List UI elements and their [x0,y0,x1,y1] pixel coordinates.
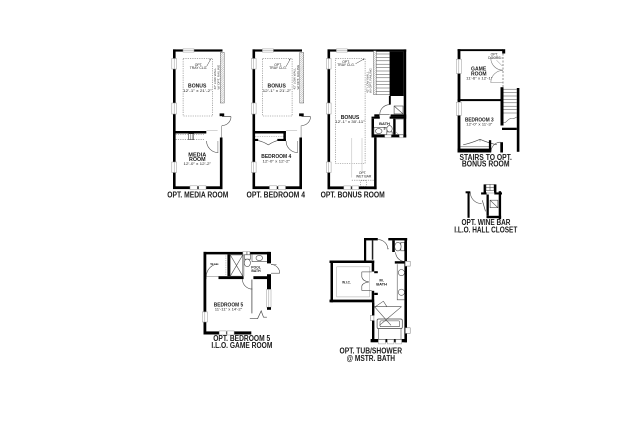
svg-text:12'-0" x 11'-3": 12'-0" x 11'-3" [466,122,493,127]
svg-text:12'-1" x 30'-11": 12'-1" x 30'-11" [335,119,365,124]
svg-text:12'-1" x 21'-2": 12'-1" x 21'-2" [263,88,292,93]
svg-text:OPT. MEDIA ROOM: OPT. MEDIA ROOM [167,190,228,199]
svg-text:W/ OPT. RAILING: W/ OPT. RAILING [296,64,300,89]
svg-text:W/ OPT. RAILING: W/ OPT. RAILING [217,64,221,89]
svg-text:W/ OPT. RAILING: W/ OPT. RAILING [369,68,373,93]
svg-text:WET BAR: WET BAR [356,175,372,179]
svg-text:12'-0" x 12'-2": 12'-0" x 12'-2" [263,158,291,163]
svg-text:12'-0" x 12'-2": 12'-0" x 12'-2" [184,161,212,166]
svg-text:TRAY CLG.: TRAY CLG. [269,66,287,70]
svg-text:BONUS ROOM: BONUS ROOM [462,160,510,169]
svg-text:W.I.C.: W.I.C. [342,280,351,284]
svg-text:12'-1" x 21'-2": 12'-1" x 21'-2" [183,88,212,93]
svg-text:OPT. BEDROOM 4: OPT. BEDROOM 4 [247,190,306,199]
svg-text:11'-6" x 12'-1": 11'-6" x 12'-1" [466,75,493,80]
svg-text:TRAY CLG.: TRAY CLG. [190,66,208,70]
svg-text:TRAY CLG.: TRAY CLG. [337,63,355,67]
svg-text:I.L.O. GAME ROOM: I.L.O. GAME ROOM [211,341,272,350]
svg-text:BATH: BATH [376,282,387,287]
svg-text:@ MSTR. BATH: @ MSTR. BATH [347,354,396,363]
svg-text:OPT. BONUS ROOM: OPT. BONUS ROOM [321,190,385,199]
svg-text:I.L.O. HALL CLOSET: I.L.O. HALL CLOSET [454,226,517,235]
svg-text:BATH: BATH [251,269,261,273]
svg-text:11'-11" x 14'-2": 11'-11" x 14'-2" [215,307,243,312]
